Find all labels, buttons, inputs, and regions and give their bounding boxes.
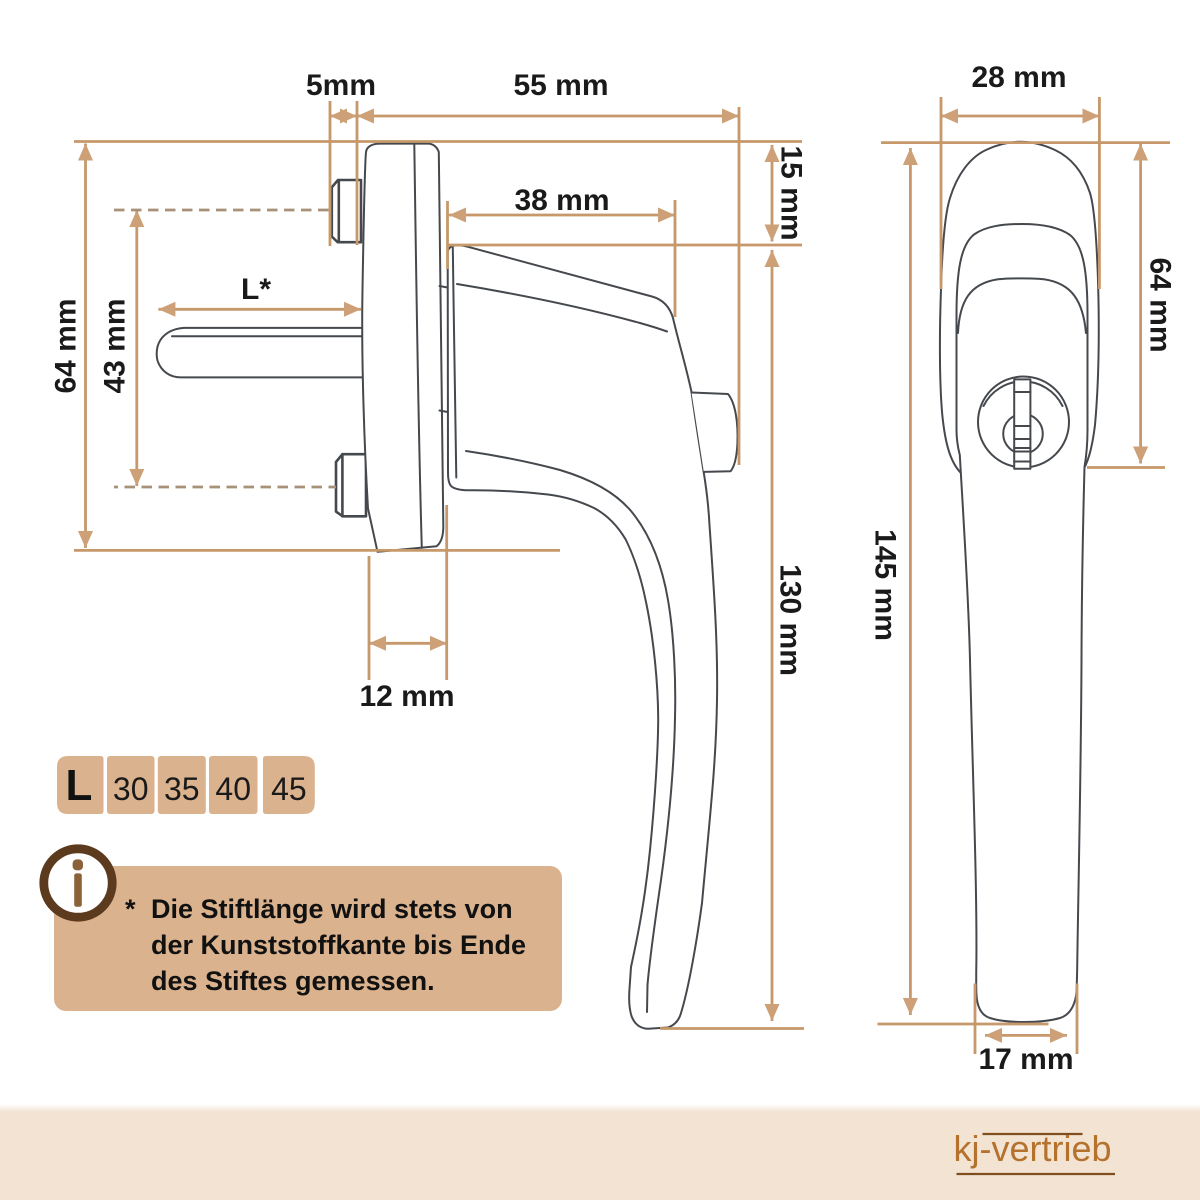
svg-text:55 mm: 55 mm xyxy=(513,69,608,102)
svg-text:45: 45 xyxy=(271,771,307,807)
svg-text:30: 30 xyxy=(113,771,149,807)
svg-text:145 mm: 145 mm xyxy=(869,529,902,641)
svg-text:L: L xyxy=(66,761,93,810)
svg-text:der Kunststoffkante bis Ende: der Kunststoffkante bis Ende xyxy=(151,930,526,960)
svg-text:kj-vertrieb: kj-vertrieb xyxy=(953,1128,1111,1169)
svg-text:64 mm: 64 mm xyxy=(50,298,83,393)
svg-text:des Stiftes gemessen.: des Stiftes gemessen. xyxy=(151,966,435,996)
svg-text:130 mm: 130 mm xyxy=(774,564,807,676)
svg-text:64 mm: 64 mm xyxy=(1144,257,1177,352)
svg-text:35: 35 xyxy=(164,771,200,807)
svg-text:15 mm: 15 mm xyxy=(775,145,808,240)
svg-text:40: 40 xyxy=(215,771,251,807)
svg-text:Die Stiftlänge wird stets von: Die Stiftlänge wird stets von xyxy=(151,894,513,924)
svg-text:17 mm: 17 mm xyxy=(978,1043,1073,1076)
svg-text:5mm: 5mm xyxy=(306,69,376,102)
svg-text:L*: L* xyxy=(241,273,271,306)
svg-text:12 mm: 12 mm xyxy=(359,680,454,713)
svg-text:*: * xyxy=(125,894,136,924)
svg-text:28 mm: 28 mm xyxy=(971,61,1066,94)
svg-text:38 mm: 38 mm xyxy=(514,184,609,217)
svg-text:43 mm: 43 mm xyxy=(99,298,132,393)
